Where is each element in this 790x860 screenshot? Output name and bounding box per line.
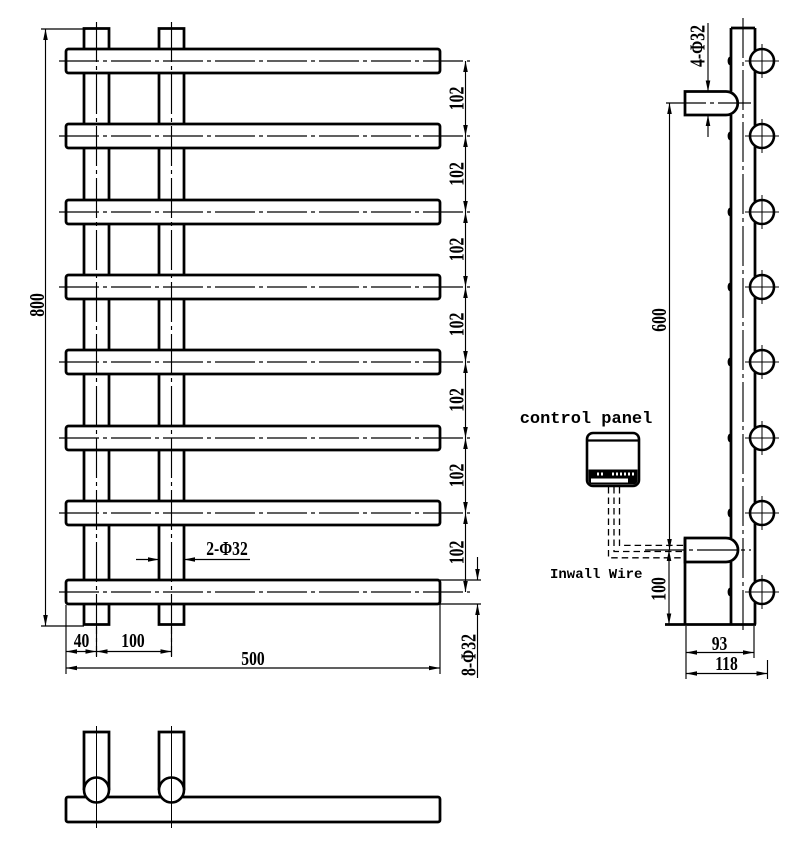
svg-text:102: 102 <box>445 464 469 488</box>
svg-text:102: 102 <box>445 388 469 412</box>
svg-text:600: 600 <box>648 308 672 332</box>
svg-text:Inwall Wire: Inwall Wire <box>550 567 642 583</box>
svg-text:102: 102 <box>445 541 469 565</box>
svg-text:102: 102 <box>445 87 469 111</box>
svg-text:control panel: control panel <box>520 410 653 429</box>
svg-text:118: 118 <box>715 652 738 674</box>
svg-text:2-Φ32: 2-Φ32 <box>206 537 248 559</box>
svg-text:40: 40 <box>74 629 90 651</box>
svg-text:102: 102 <box>445 162 469 186</box>
svg-text:100: 100 <box>647 577 671 601</box>
svg-text:4-Φ32: 4-Φ32 <box>686 25 710 67</box>
svg-text:800: 800 <box>26 293 50 317</box>
svg-text:500: 500 <box>241 647 264 669</box>
svg-text:93: 93 <box>712 632 728 654</box>
svg-text:100: 100 <box>121 629 144 651</box>
svg-text:102: 102 <box>445 238 469 262</box>
svg-text:102: 102 <box>445 313 469 337</box>
svg-text:8-Φ32: 8-Φ32 <box>457 634 481 676</box>
